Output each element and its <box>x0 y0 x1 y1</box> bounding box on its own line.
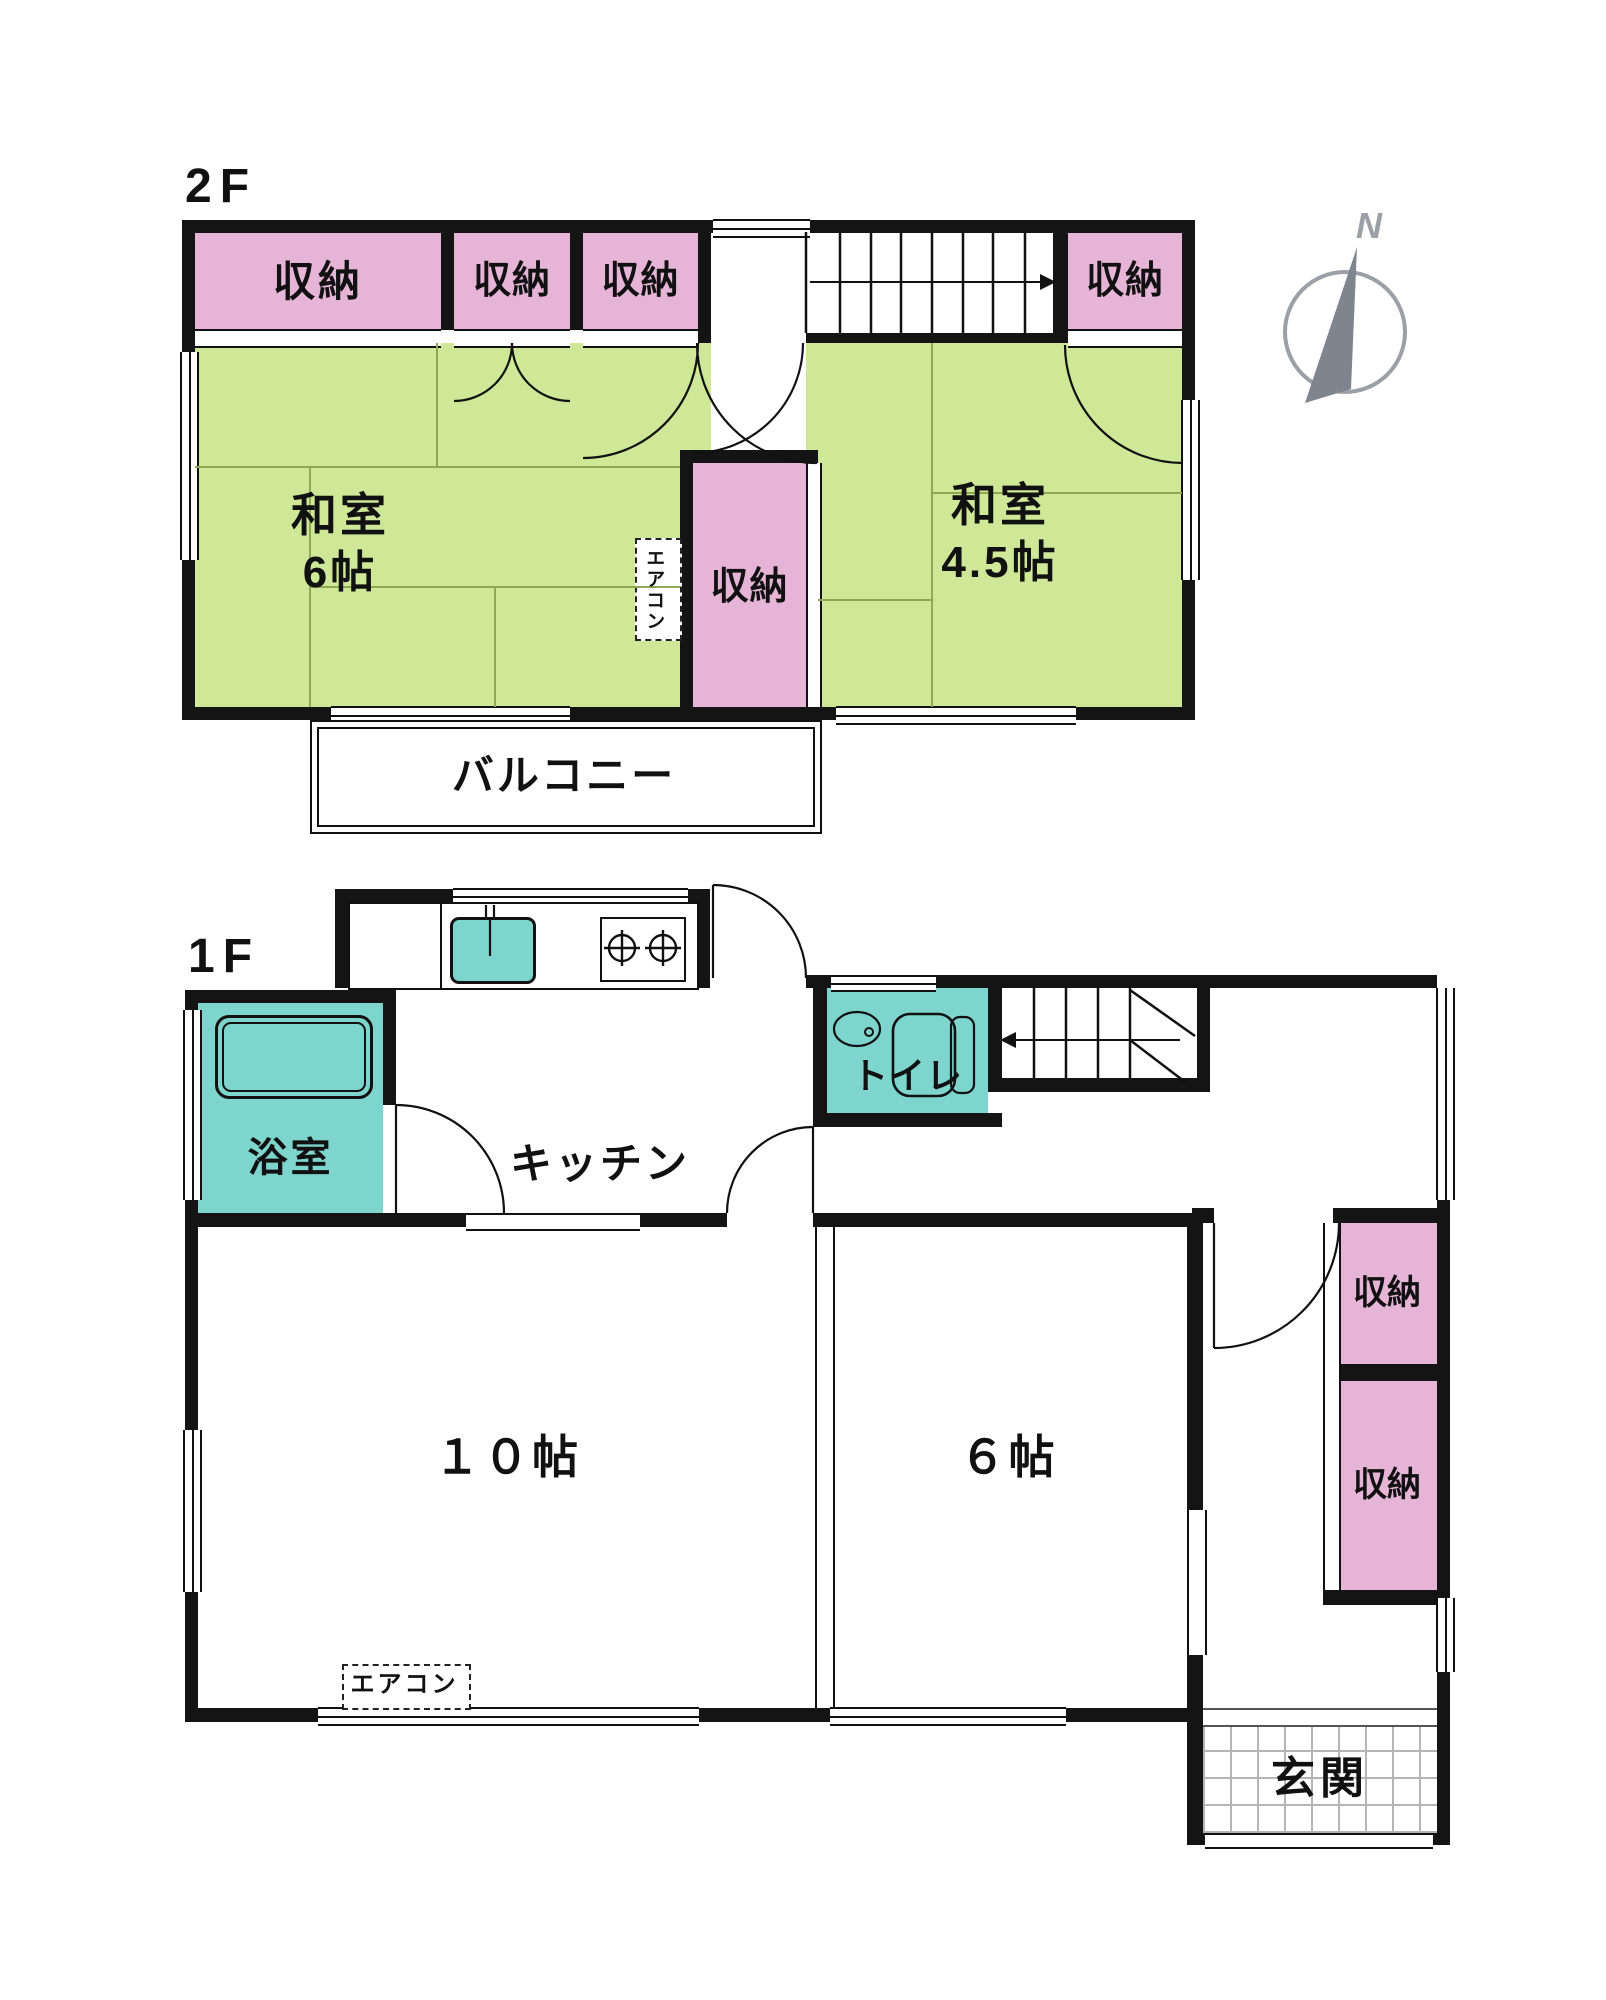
f2-hall-door-right-arc <box>697 343 817 463</box>
f2-closet2-door-arc-a <box>454 343 512 401</box>
f1-entrance-label: 玄関 <box>1203 1754 1437 1803</box>
f2-closet-top-left-label: 収納 <box>195 258 441 305</box>
floor-plan-canvas: 2F 1F 収納 収納 収納 収納 和室 6帖 収納 和室 4.5帖 バルコニー… <box>0 0 1606 2000</box>
f1-living10-label: １０帖 <box>198 1432 817 1484</box>
f2-washitsu45-door-arc <box>1065 345 1183 463</box>
f2-washitsu45-name: 和室 <box>850 480 1150 532</box>
f2-aircon-label: エアコン <box>643 548 664 632</box>
f2-closet3-door-arc <box>583 343 698 458</box>
f2-closet-top-mid1-label: 収納 <box>454 260 570 303</box>
f2-closet2-door-arc-b <box>512 343 570 401</box>
f1-toilet-label: トイレ <box>827 1056 988 1096</box>
floor2-label: 2F <box>185 160 257 214</box>
sink-faucet-icon <box>486 905 494 956</box>
f1-corridor-door-arc <box>1214 1223 1339 1348</box>
f1-room6-label: ６帖 <box>830 1432 1187 1484</box>
f1-closet-east-lower-label: 収納 <box>1337 1466 1437 1504</box>
f1-aircon-label: エアコン <box>342 1672 467 1699</box>
toilet-basin-icon <box>834 1012 880 1046</box>
f1-bathroom-label: 浴室 <box>198 1136 383 1181</box>
f2-washitsu6-name: 和室 <box>210 490 470 542</box>
f2-washitsu6-size: 6帖 <box>210 548 470 597</box>
f2-closet-center-label: 収納 <box>693 566 806 609</box>
f2-washitsu45-size: 4.5帖 <box>850 538 1150 587</box>
f1-stairs-down-arrow <box>1000 1032 1016 1048</box>
f1-closet-east-upper-label: 収納 <box>1337 1274 1437 1312</box>
f2-closet-top-mid2-label: 収納 <box>583 260 698 303</box>
balcony-label: バルコニー <box>310 752 818 799</box>
f2-staircase <box>806 232 1040 333</box>
f2-closet-top-right-label: 収納 <box>1068 260 1182 303</box>
f1-backdoor-arc <box>713 885 806 978</box>
f1-kitchen-label: キッチン <box>400 1140 800 1187</box>
stove-burner-icons <box>604 930 681 966</box>
f1-staircase <box>1016 988 1195 1088</box>
floor1-label: 1F <box>188 930 260 984</box>
f2-stairs-up-arrow <box>1040 274 1056 290</box>
compass-icon <box>1285 247 1405 403</box>
compass-north-label: N <box>1356 206 1382 246</box>
